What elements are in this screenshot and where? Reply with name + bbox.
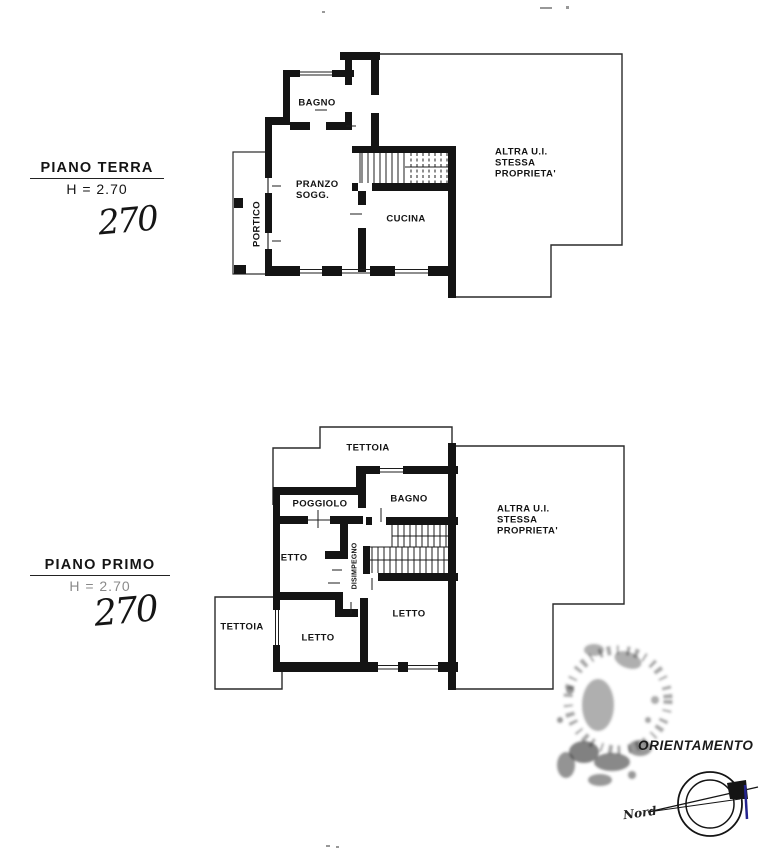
room-label-letto-bottom-right: LETTO bbox=[393, 609, 426, 620]
ground-floor-plan bbox=[233, 52, 622, 298]
room-label-pranzo-soggiorno: PRANZO SOGG. bbox=[296, 179, 339, 201]
orientation-label: ORIENTAMENTO bbox=[638, 738, 753, 753]
label-altra-ui-first: ALTRA U.I. STESSA PROPRIETA' bbox=[497, 504, 558, 537]
first-stairs-icon bbox=[363, 525, 456, 573]
room-label-disimpegno: DISIMPEGNO bbox=[350, 543, 361, 590]
room-label-letto-mid: LETTO bbox=[275, 553, 308, 564]
room-label-tettoia-top: TETTOIA bbox=[346, 443, 389, 454]
rubber-stamp bbox=[557, 644, 668, 786]
ground-floor-handwritten-height: 270 bbox=[96, 199, 158, 244]
compass-icon bbox=[648, 772, 758, 836]
first-walls bbox=[273, 443, 458, 690]
room-label-cucina: CUCINA bbox=[386, 214, 425, 225]
first-tettoia-left-outline bbox=[215, 597, 282, 689]
first-floor-title: PIANO PRIMO bbox=[30, 557, 170, 576]
first-floor-handwritten-height: 270 bbox=[92, 588, 158, 634]
ground-floor-title-block: PIANO TERRA H = 2.70 bbox=[30, 160, 164, 197]
ground-stairs-icon bbox=[360, 153, 448, 183]
room-label-portico: PORTICO bbox=[252, 201, 263, 247]
ground-floor-title: PIANO TERRA bbox=[30, 160, 164, 179]
room-label-letto-bottom-left: LETTO bbox=[302, 633, 335, 644]
label-altra-ui-ground: ALTRA U.I. STESSA PROPRIETA' bbox=[495, 147, 556, 180]
room-label-poggiolo: POGGIOLO bbox=[293, 499, 348, 510]
ground-portico-outline bbox=[233, 152, 268, 274]
room-label-bagno-first: BAGNO bbox=[390, 494, 427, 505]
floor-plan-document: PIANO TERRA H = 2.70 270 BAGNO PRANZO SO… bbox=[0, 0, 759, 851]
floor-plan-drawing bbox=[0, 0, 759, 851]
room-label-bagno-ground: BAGNO bbox=[298, 98, 335, 109]
ground-floor-height-label: H = 2.70 bbox=[30, 181, 164, 197]
room-label-tettoia-left: TETTOIA bbox=[220, 622, 263, 633]
